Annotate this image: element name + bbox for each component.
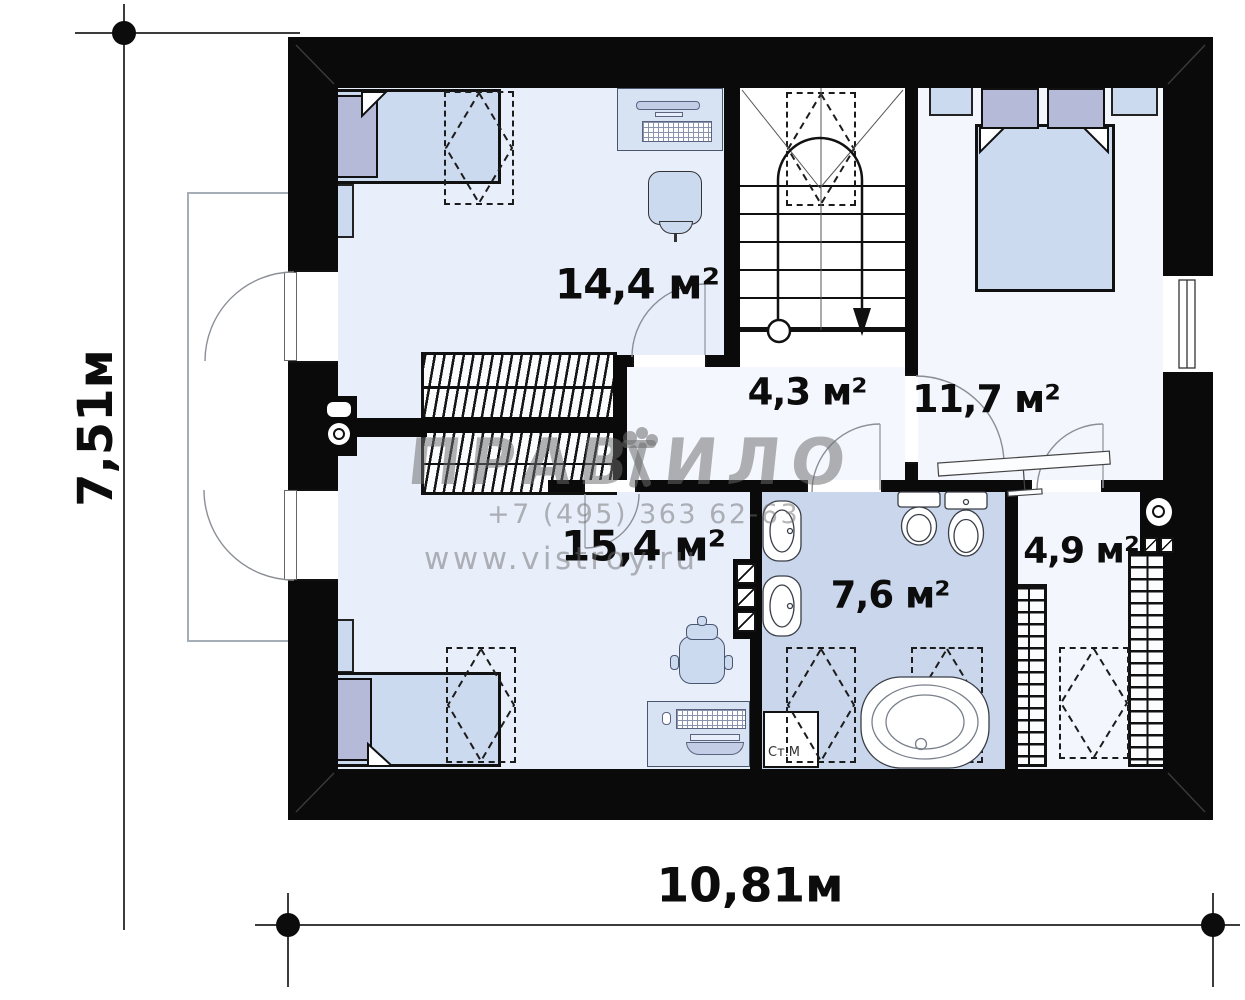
skylight-outline xyxy=(786,92,856,206)
dim-tick xyxy=(1212,893,1214,987)
window-opening xyxy=(1163,276,1213,372)
door-leaf xyxy=(284,272,297,361)
bed-double xyxy=(975,124,1115,292)
nightstand xyxy=(1111,86,1158,116)
dim-marker-dot xyxy=(276,913,300,937)
mouse xyxy=(662,712,671,725)
duct-cell-icon xyxy=(736,587,756,608)
skylight-outline xyxy=(786,647,856,763)
floor-plan: Ст.М xyxy=(0,0,1245,1000)
shelving-right xyxy=(1128,551,1167,767)
dim-tick xyxy=(287,893,289,987)
office-chair-stem xyxy=(674,233,677,242)
keyboard xyxy=(676,709,746,729)
wall-bedroom-south xyxy=(918,480,1030,492)
wall-bedroom-west xyxy=(905,464,918,492)
door-leaf xyxy=(284,490,297,580)
stair-landing-edge xyxy=(740,327,905,332)
room-area-label: 4,9 м² xyxy=(1023,531,1139,572)
stair-tread xyxy=(740,269,905,271)
door-opening-bathroom xyxy=(806,480,883,492)
pillow xyxy=(332,95,378,178)
skylight-outline xyxy=(911,647,983,763)
door-opening-room144 xyxy=(632,355,707,367)
wall-right xyxy=(1163,37,1213,820)
dim-width-label: 10,81м xyxy=(656,859,843,914)
door-opening-wardrobe-room xyxy=(1030,480,1103,492)
stair-tread xyxy=(740,213,905,215)
monitor xyxy=(636,101,700,110)
wall-stair-west xyxy=(724,88,740,367)
office-chair-seat xyxy=(648,171,702,225)
dim-height-label: 7,51м xyxy=(68,349,124,507)
armchair-armrest xyxy=(670,655,679,670)
wall-top xyxy=(288,37,1213,88)
duct-cell-icon xyxy=(1160,537,1174,553)
wall-bathroom-east xyxy=(1005,492,1018,769)
armchair-back xyxy=(686,624,718,640)
chimney-pill xyxy=(327,402,351,417)
terrace-railing xyxy=(187,192,296,642)
dim-marker-dot xyxy=(1201,913,1225,937)
monitor-stand xyxy=(690,734,740,741)
pillow xyxy=(1047,88,1105,129)
room-area-label: 14,4 м² xyxy=(555,260,719,309)
wall-wardrobe-divider xyxy=(421,417,617,433)
dim-marker-dot xyxy=(112,21,136,45)
room-area-label: 7,6 м² xyxy=(831,574,950,617)
armchair-armrest xyxy=(724,655,733,670)
armchair-knob xyxy=(697,616,707,626)
room-area-label: 4,3 м² xyxy=(748,371,867,414)
wall-room144-south xyxy=(707,355,740,367)
wardrobe-top xyxy=(421,352,617,420)
pillow xyxy=(981,88,1039,129)
armchair-body xyxy=(679,636,725,684)
room-area-label: 11,7 м² xyxy=(912,377,1060,421)
stair-tread xyxy=(740,297,905,299)
skylight-outline xyxy=(1059,647,1129,759)
dim-line-horizontal xyxy=(255,924,1240,926)
duct-cell-icon xyxy=(736,563,756,584)
duct-cell-icon xyxy=(736,611,756,632)
skylight-outline xyxy=(444,91,514,205)
wall-bedroom-west xyxy=(905,88,918,374)
monitor xyxy=(686,742,744,755)
duct-cell-icon xyxy=(1144,537,1158,553)
wall-room144-south xyxy=(613,355,632,367)
vent-circle-inner xyxy=(1152,505,1165,518)
keyboard xyxy=(642,121,712,142)
wall-mid-stub xyxy=(548,480,583,492)
room-area-label: 15,4 м² xyxy=(561,522,725,571)
wall-hall-south xyxy=(637,480,806,492)
wall-bottom xyxy=(288,769,1213,820)
wall-bedroom-south xyxy=(1103,480,1165,492)
door-opening-room154 xyxy=(583,480,637,492)
chimney-circle-inner xyxy=(333,428,345,440)
skylight-outline xyxy=(446,647,516,763)
nightstand xyxy=(929,86,973,116)
monitor-stand xyxy=(655,112,683,117)
pillow xyxy=(332,678,372,761)
stair-tread xyxy=(740,241,905,243)
dim-tick xyxy=(75,32,300,34)
